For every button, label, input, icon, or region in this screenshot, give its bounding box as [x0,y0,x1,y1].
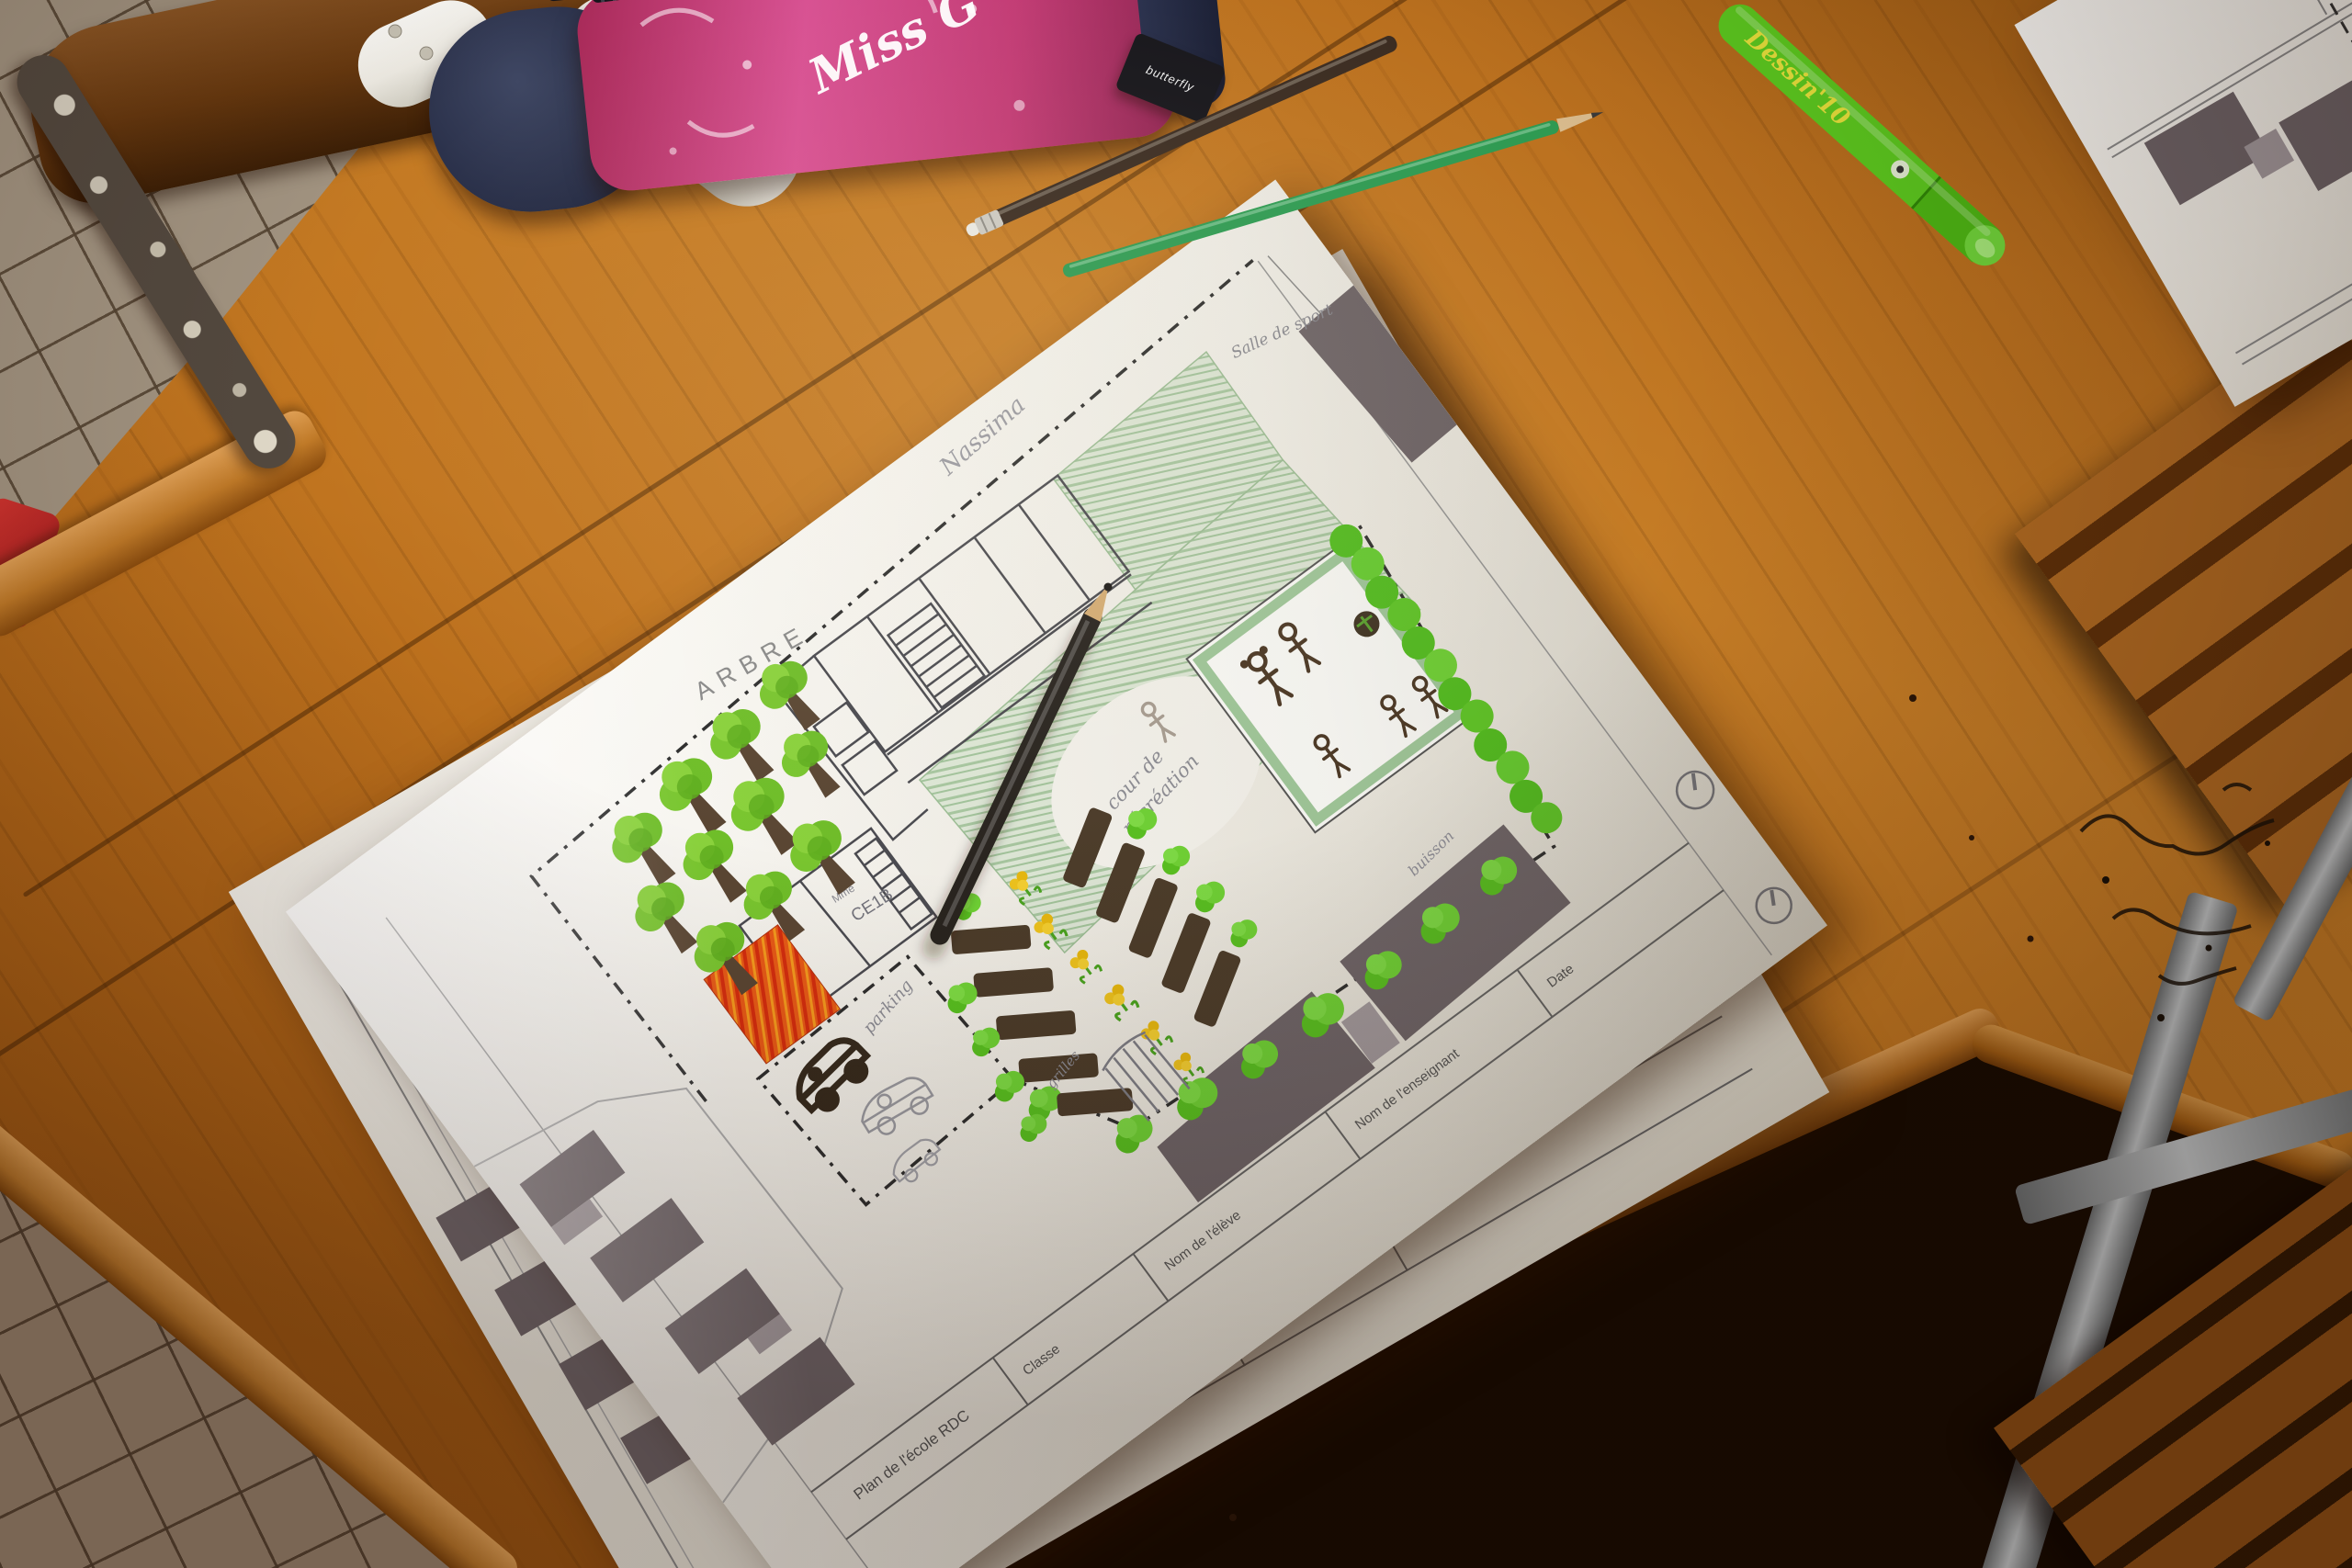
date-field: Date [1544,961,1577,991]
sheet-title: Plan de l'école RDC [851,1406,973,1503]
stairs-symbol [888,604,985,707]
parking-label: parking [859,976,917,1038]
brand-tag-text: butterfly [1145,62,1197,95]
zipper-pull [545,0,583,2]
student-field: Nom de l'élève [1161,1207,1243,1273]
printed-buildings [2144,0,2352,341]
pencil-case-print-text: Miss G [798,0,989,106]
class-field: Classe [1020,1341,1063,1379]
parking-cars [782,1010,969,1208]
photo-classroom-desk-scene: Plan de l'école étage Classe Date [0,0,2352,1568]
